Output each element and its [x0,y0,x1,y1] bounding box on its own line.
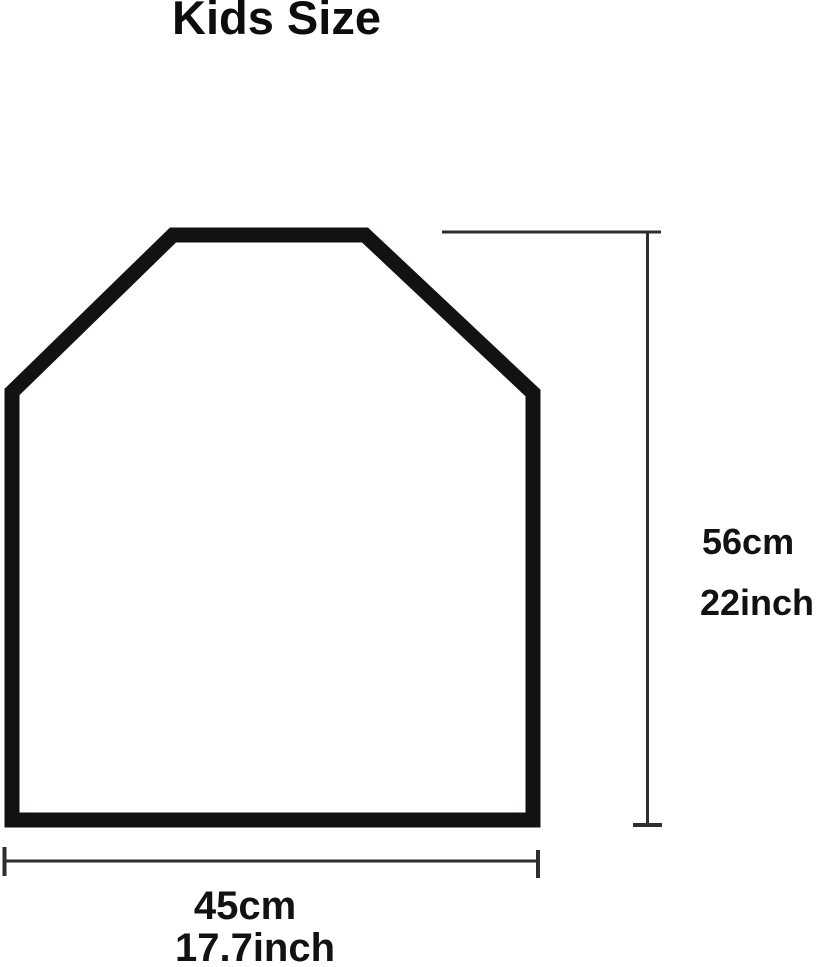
width-label-inch: 17.7inch [175,928,335,967]
width-label-cm: 45cm [194,886,296,926]
size-chart-image: Kids Size 56cm 22inch 45cm 17.7inch [0,0,821,967]
size-diagram [0,0,821,967]
height-label-cm: 56cm [702,524,794,560]
garment-outline-shape [12,235,533,820]
height-label-inch: 22inch [700,585,814,621]
